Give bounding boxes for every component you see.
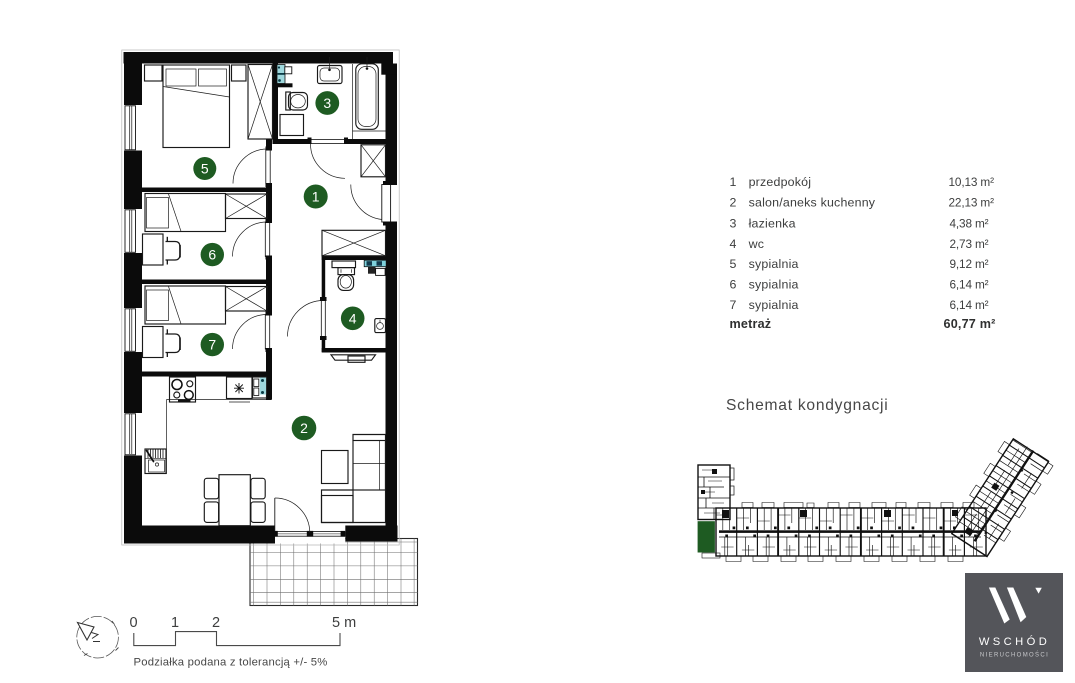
svg-text:60,77 m²: 60,77 m² <box>944 317 996 331</box>
svg-text:2,73 m²: 2,73 m² <box>950 237 989 251</box>
svg-text:metraż: metraż <box>730 317 772 331</box>
svg-text:łazienka: łazienka <box>749 216 796 230</box>
svg-text:6,14 m²: 6,14 m² <box>950 277 989 291</box>
svg-text:sypialnia: sypialnia <box>749 277 799 291</box>
svg-text:Schemat kondygnacji: Schemat kondygnacji <box>726 397 888 414</box>
svg-text:2: 2 <box>300 420 308 436</box>
svg-text:9,12 m²: 9,12 m² <box>950 257 989 271</box>
svg-text:sypialnia: sypialnia <box>749 257 799 271</box>
svg-text:4,38 m²: 4,38 m² <box>950 216 989 230</box>
svg-text:1: 1 <box>171 615 179 631</box>
svg-text:5 m: 5 m <box>332 615 356 631</box>
svg-text:NIERUCHOMOŚCI: NIERUCHOMOŚCI <box>980 651 1049 659</box>
svg-text:22,13 m²: 22,13 m² <box>949 196 995 210</box>
svg-text:1: 1 <box>312 189 320 205</box>
svg-text:2: 2 <box>212 615 220 631</box>
svg-text:5: 5 <box>730 257 737 271</box>
svg-text:Podziałka podana z tolerancją: Podziałka podana z tolerancją +/- 5% <box>134 657 328 669</box>
svg-text:sypialnia: sypialnia <box>749 298 799 312</box>
svg-text:4: 4 <box>349 310 357 326</box>
svg-text:6: 6 <box>730 277 737 291</box>
svg-text:4: 4 <box>730 237 737 251</box>
svg-text:wc: wc <box>748 237 765 251</box>
svg-text:7: 7 <box>730 298 737 312</box>
svg-text:WSCHÓD: WSCHÓD <box>979 635 1050 648</box>
svg-text:1: 1 <box>730 175 737 189</box>
svg-text:6,14 m²: 6,14 m² <box>950 298 989 312</box>
svg-text:10,13 m²: 10,13 m² <box>949 175 995 189</box>
svg-text:2: 2 <box>730 196 737 210</box>
svg-text:przedpokój: przedpokój <box>749 175 812 189</box>
svg-text:0: 0 <box>130 615 138 631</box>
svg-text:5: 5 <box>201 161 209 177</box>
svg-text:salon/aneks kuchenny: salon/aneks kuchenny <box>749 196 876 210</box>
svg-text:7: 7 <box>208 337 216 353</box>
svg-text:6: 6 <box>208 247 216 263</box>
svg-text:3: 3 <box>323 95 331 111</box>
svg-text:3: 3 <box>730 216 737 230</box>
